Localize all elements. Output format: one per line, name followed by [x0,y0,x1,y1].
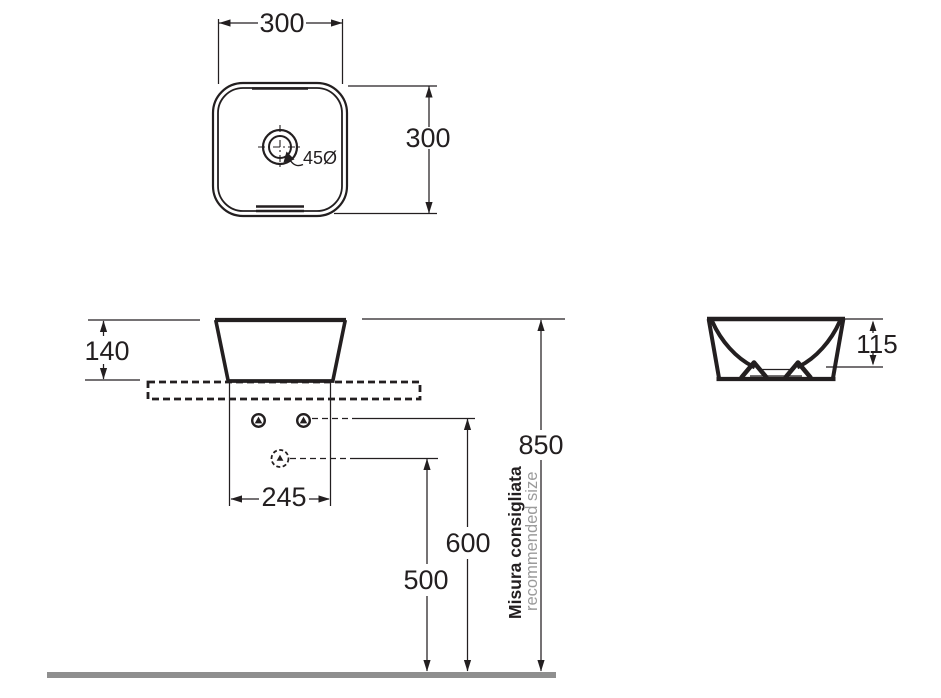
side-view: 115 [707,319,898,379]
dim-basin-height: 140 [84,320,200,380]
countertop-dashed-outline [148,382,420,399]
dim-holes-span: 245 [230,382,331,512]
arrow-down [537,660,544,672]
dim-low-height: 500 [403,459,448,672]
arrow-down [100,368,107,380]
fixing-hole-triangle [255,417,263,424]
dim-label-top-width: 300 [259,8,304,38]
dim-label-rim-height: 850 [518,430,563,460]
dim-label-top-depth: 300 [405,123,450,153]
note-english: recommended size [523,472,541,611]
top-view: 45Ø 300 300 [213,8,451,216]
arrow-up [423,459,430,471]
arrow-up [100,321,107,333]
drain-hole-triangle [277,455,284,461]
drawing-svg: 45Ø 300 300 [0,0,941,698]
dim-top-width: 300 [219,8,343,84]
drain-leader-line [290,160,303,166]
arrow-right [319,495,331,502]
basin-front-right-wall [333,320,346,381]
arrow-up [425,86,432,98]
drain-diameter-label: 45Ø [303,148,337,168]
arrow-down [464,660,471,672]
arrow-down [423,660,430,672]
dim-top-depth: 300 [334,86,451,214]
note-italian: Misura consigliata [505,466,525,619]
floor-line [47,672,556,678]
dim-label-section-depth: 115 [856,329,897,359]
dim-label-mid-height: 600 [445,528,490,558]
recommended-size-note: Misura consigliata recommended size [505,466,541,619]
arrow-up [537,320,544,332]
dim-label-basin-height: 140 [84,336,129,366]
drain-plan: 45Ø [258,125,337,169]
arrow-down [425,202,432,214]
fixing-hole-triangle [300,417,308,424]
section-inner-bowl-left [713,322,754,367]
arrow-left [231,495,243,502]
arrow-up [464,419,471,431]
basin-front-left-wall [216,320,229,381]
arrow-right [331,19,343,26]
dim-label-holes-span: 245 [261,482,306,512]
dim-label-low-height: 500 [403,565,448,595]
front-view: 140 245 [84,320,475,512]
washbasin-technical-drawing: 45Ø 300 300 [0,0,941,698]
arrow-left [219,19,231,26]
dim-mid-height: 600 [445,419,490,672]
section-inner-bowl-right [799,322,840,367]
